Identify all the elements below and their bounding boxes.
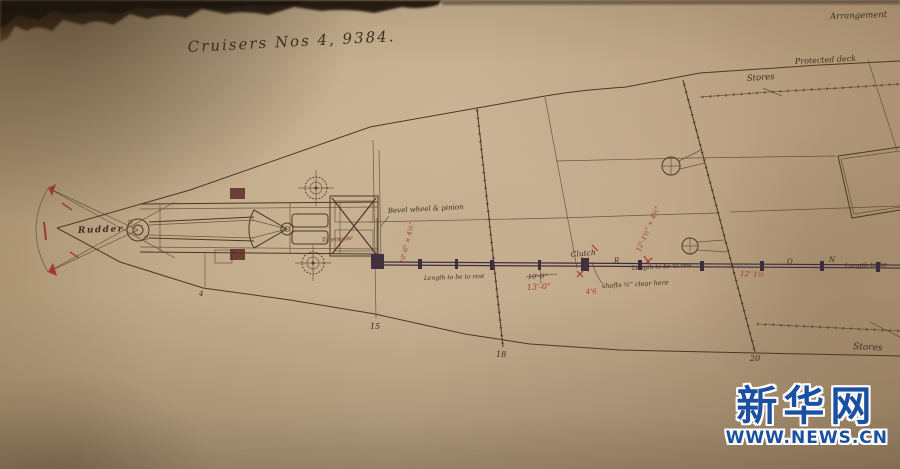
- label-telemotor: Telemotor: [322, 235, 354, 244]
- label-clutch: Clutch: [570, 248, 596, 259]
- dim-13: 13'-0": [527, 282, 551, 292]
- watermark-url: WWW.NEWS.CN: [726, 430, 888, 447]
- shaft-letter-r: R: [613, 257, 620, 265]
- station-4: 4: [198, 290, 203, 298]
- label-bevel: Bevel wheel & pinion: [387, 203, 465, 215]
- dim-12-1: 12' 1½: [740, 270, 765, 279]
- rudder-gear: [36, 184, 254, 276]
- steering-machinery: [140, 170, 389, 281]
- note-length-right: Length to be: [844, 261, 887, 271]
- shaft-letter-o: O: [787, 258, 793, 266]
- dim-4-6: 4'6: [585, 287, 598, 296]
- label-stores-top: Stores: [747, 72, 776, 84]
- label-rudder: Rudder: [77, 224, 124, 236]
- station-15: 15: [370, 322, 380, 331]
- dim-rotated-right: 12'-1½" × 4½": [635, 205, 662, 253]
- dim-10-crossed: 10'-0": [528, 272, 548, 281]
- watermark-brand: 新华网: [726, 386, 888, 427]
- dim-rotated-left: 10'-6" × 4½": [398, 221, 416, 264]
- watermark: 新华网 WWW.NEWS.CN: [726, 386, 888, 447]
- blueprint-photo: Cruisers Nos 4, 9384. Arrangement Protec…: [0, 0, 900, 469]
- note-length-left: Length to be to rest: [423, 273, 485, 282]
- drawing-title: Cruisers Nos 4, 9384.: [187, 27, 396, 56]
- note-shafts-clear: shafts ½" clear here: [602, 279, 669, 290]
- station-lines: [205, 80, 755, 352]
- label-stores-bottom: Stores: [853, 342, 883, 354]
- hull-outline: [57, 60, 900, 356]
- deck-fittings: [662, 150, 727, 254]
- station-20: 20: [749, 354, 760, 363]
- shaft-letter-n: N: [828, 256, 836, 264]
- station-18: 18: [496, 350, 506, 359]
- label-protected-deck: Protected deck: [794, 54, 857, 66]
- corner-note: Arrangement: [829, 10, 888, 22]
- torn-paper-edge: [0, 0, 900, 42]
